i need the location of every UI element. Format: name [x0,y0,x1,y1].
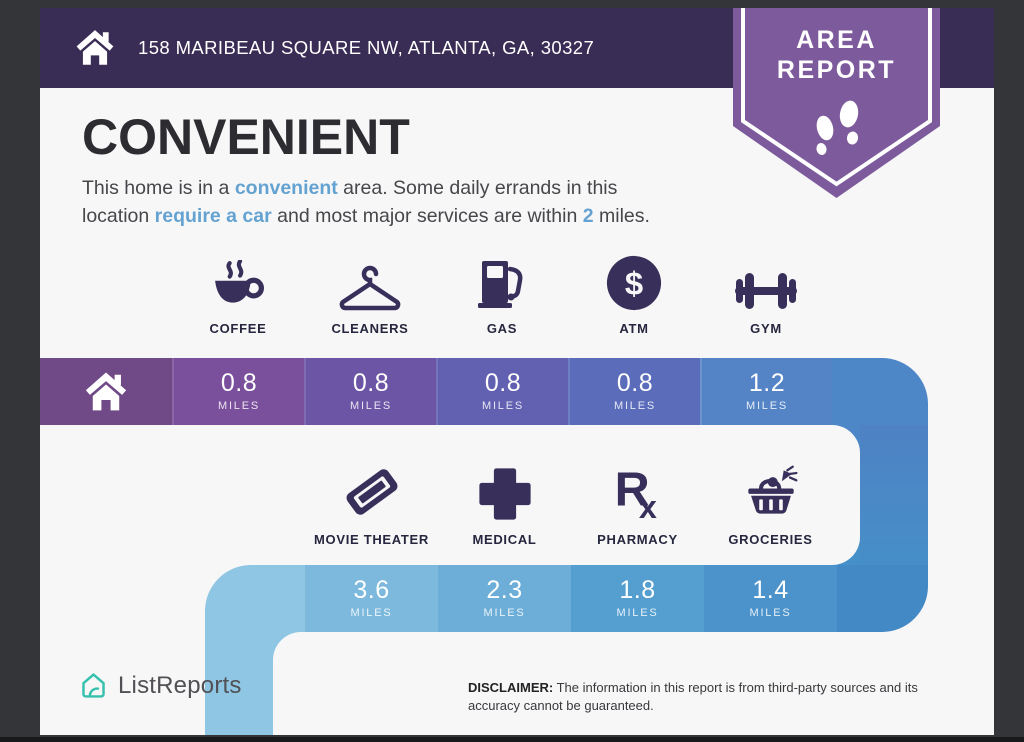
home-icon [83,371,129,413]
hanger-icon [338,246,402,312]
desc-seg: miles. [594,205,650,227]
distance-value: 0.8 [221,371,257,396]
origin-home-cell [40,358,172,425]
desc-seg: location [82,205,155,227]
dumbbell-icon [734,246,798,312]
distance-cell-pharmacy: 1.8 MILES [571,565,704,632]
bottom-frame-edge [0,737,1024,742]
distance-cell-movie-theater: 3.6 MILES [305,565,438,632]
distance-cell-coffee: 0.8 MILES [172,358,304,425]
distance-unit: MILES [482,400,524,412]
amenity-pharmacy: R x PHARMACY [571,457,704,547]
distance-cell-gym: 1.2 MILES [700,358,832,425]
distance-bar-row2: 3.6 MILES 2.3 MILES 1.8 MILES 1.4 MILES [205,565,928,632]
badge-title: AREA REPORT [733,25,940,85]
distance-value: 1.8 [619,578,655,603]
amenity-movie-theater: MOVIE THEATER [305,457,438,547]
area-report-badge: AREA REPORT [733,8,940,200]
amenity-label: MEDICAL [472,532,536,547]
distance-value: 0.8 [353,371,389,396]
distance-unit: MILES [614,400,656,412]
desc-highlight: require a car [155,205,272,227]
distance-unit: MILES [746,400,788,412]
property-address: 158 MARIBEAU SQUARE NW, ATLANTA, GA, 303… [138,37,594,59]
distance-unit: MILES [483,607,525,619]
path-corner-segment [832,358,928,425]
badge-line2: REPORT [733,55,940,85]
distance-value: 0.8 [617,371,653,396]
desc-seg: and most major services are within [272,205,583,227]
amenity-label: MOVIE THEATER [314,532,429,547]
path-lead-segment [205,565,305,632]
distance-cell-medical: 2.3 MILES [438,565,571,632]
distance-unit: MILES [218,400,260,412]
path-corner-segment [837,565,928,632]
path-vertical-right [860,403,928,583]
distance-value: 1.4 [752,578,788,603]
listreports-logo-icon [78,670,109,701]
distance-cell-atm: 0.8 MILES [568,358,700,425]
amenity-coffee: COFFEE [172,246,304,336]
amenity-label: CLEANERS [331,321,408,336]
description-text: This home is in a convenient area. Some … [82,175,650,230]
amenity-gas: GAS [436,246,568,336]
desc-seg: area. Some daily errands in this [338,177,618,199]
distance-value: 2.3 [486,578,522,603]
gas-pump-icon [474,246,530,312]
desc-highlight: 2 [583,205,594,227]
distance-value: 1.2 [749,371,785,396]
distance-cell-groceries: 1.4 MILES [704,565,837,632]
distance-value: 0.8 [485,371,521,396]
amenity-label: GROCERIES [728,532,812,547]
medical-cross-icon [476,457,534,523]
distance-unit: MILES [350,607,392,619]
distance-cell-gas: 0.8 MILES [436,358,568,425]
amenity-cleaners: CLEANERS [304,246,436,336]
report-content: 158 MARIBEAU SQUARE NW, ATLANTA, GA, 303… [40,8,994,735]
amenity-medical: MEDICAL [438,457,571,547]
rx-icon: R x [611,457,665,523]
desc-seg: This home is in a [82,177,235,199]
page-title: CONVENIENT [82,108,410,166]
amenity-gym: GYM [700,246,832,336]
listreports-logo: ListReports [78,670,242,701]
area-report-page: 158 MARIBEAU SQUARE NW, ATLANTA, GA, 303… [0,0,1024,742]
svg-text:x: x [638,489,656,523]
amenity-row-1: COFFEE CLEANERS [172,246,832,336]
distance-unit: MILES [350,400,392,412]
amenity-label: ATM [619,321,648,336]
svg-text:$: $ [625,265,643,302]
distance-unit: MILES [616,607,658,619]
distance-bar-row1: 0.8 MILES 0.8 MILES 0.8 MILES 0.8 MILES … [40,358,928,425]
amenity-atm: $ ATM [568,246,700,336]
amenity-row-2: MOVIE THEATER MEDICAL R x PHARMACY [305,457,837,547]
grocery-basket-icon [742,457,800,523]
brand-name: ListReports [118,672,242,700]
distance-cell-cleaners: 0.8 MILES [304,358,436,425]
distance-unit: MILES [749,607,791,619]
amenity-label: COFFEE [210,321,267,336]
home-icon [74,29,116,67]
disclaimer-label: DISCLAIMER: [468,680,553,695]
badge-line1: AREA [733,25,940,55]
desc-highlight: convenient [235,177,338,199]
movie-ticket-icon [341,457,403,523]
disclaimer-text: DISCLAIMER: The information in this repo… [468,679,973,715]
coffee-icon [208,246,268,312]
amenity-label: GYM [750,321,782,336]
amenity-label: GAS [487,321,517,336]
amenity-groceries: GROCERIES [704,457,837,547]
distance-value: 3.6 [353,578,389,603]
amenity-label: PHARMACY [597,532,678,547]
dollar-circle-icon: $ [605,246,663,312]
